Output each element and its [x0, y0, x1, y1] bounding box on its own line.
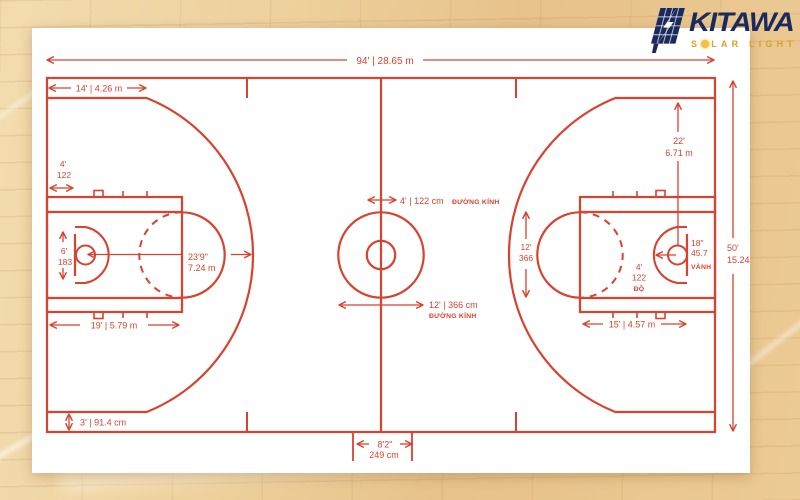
label-backboard-offset-cm: 122 [57, 170, 71, 180]
label-center-inner-dia-vn: ĐƯỜNG KÍNH [452, 197, 500, 206]
label-center-ticks-cm: 249 cm [369, 450, 399, 460]
label-sideline-gap: 3' | 91.4 cm [80, 418, 126, 428]
label-15ft: 15' | 4.57 m [609, 320, 656, 330]
label-rim-cm: 45.7 [691, 248, 708, 258]
label-center-ticks-ft: 8'2" [378, 440, 393, 450]
label-backboard-offset-ft: 4' [60, 159, 67, 169]
kitawa-logo: KITAWA SLAR LIGHT [648, 7, 797, 54]
sun-icon [701, 40, 709, 48]
label-backboard-width-ft: 6' [61, 246, 68, 256]
tagline-suffix: LAR LIGHT [711, 39, 797, 49]
label-court-length: 94' | 28.65 m [356, 56, 413, 67]
label-restricted-cm: 122 [632, 273, 646, 283]
label-center-outer-dia: 12' | 366 cm [429, 300, 478, 310]
basketball-court-diagram: 94' | 28.65 m 14' | 4.26 m 4' 122 6' 183… [0, 0, 800, 500]
label-rim-vn: VÀNH [691, 262, 711, 271]
right-ft-circle-solid [537, 212, 580, 297]
right-ft-circle-dashed [580, 212, 623, 297]
tagline-prefix: S [691, 39, 701, 49]
solar-panel-icon [648, 7, 686, 54]
label-three-pt-radius-m: 7.24 m [188, 263, 216, 273]
label-22ft-m: 6.71 m [665, 148, 693, 158]
logo-text: KITAWA SLAR LIGHT [689, 7, 797, 49]
label-key-length: 19' | 5.79 m [91, 321, 138, 331]
label-rim-in: 18" [691, 238, 703, 248]
label-court-width-ft: 50' [727, 243, 739, 253]
label-backboard-width-cm: 183 [58, 257, 72, 267]
label-court-width-m: 15.24 [727, 255, 750, 265]
dimension-lines [47, 60, 733, 461]
label-restricted-vn: ĐỘ [634, 284, 645, 293]
label-22ft: 22' [673, 136, 685, 146]
label-center-outer-dia-vn: ĐƯỜNG KÍNH [429, 311, 477, 320]
label-lane-width-cm: 366 [519, 253, 533, 263]
label-lane-width-ft: 12' [520, 242, 531, 252]
label-restricted-ft: 4' [636, 262, 643, 272]
brand-tagline: SLAR LIGHT [691, 39, 797, 49]
brand-name: KITAWA [689, 7, 794, 37]
label-three-pt-radius-ft: 23'9" [188, 252, 208, 262]
screenshot-root: { "logo": { "brand": "KITAWA", "tagline_… [0, 0, 800, 500]
dimension-labels: 94' | 28.65 m 14' | 4.26 m 4' 122 6' 183… [57, 56, 750, 460]
label-three-pt-straight: 14' | 4.26 m [76, 84, 123, 94]
label-center-inner-dia: 4' | 122 cm [400, 196, 444, 206]
